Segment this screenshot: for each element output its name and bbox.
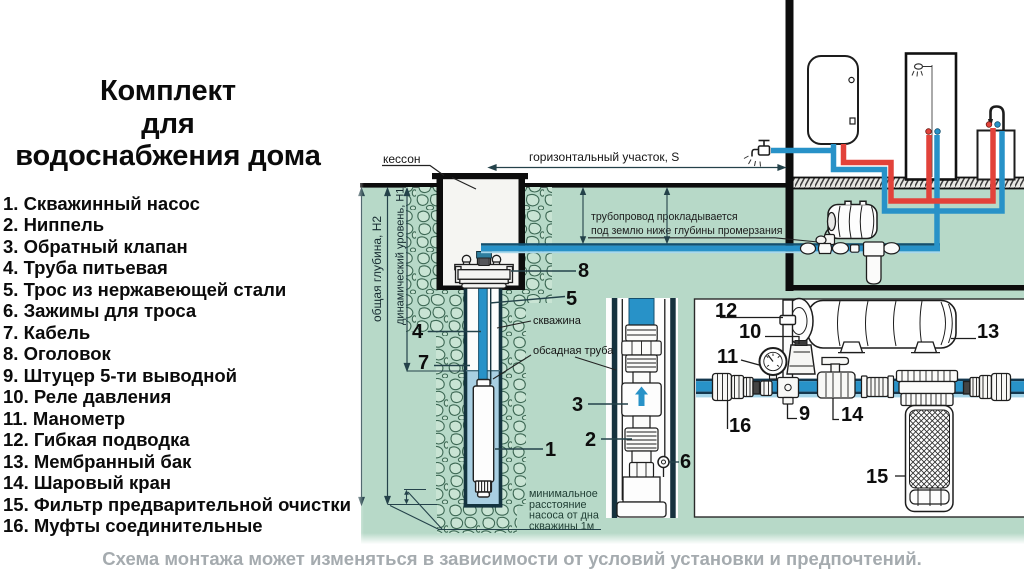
- svg-text:16: 16: [729, 415, 751, 437]
- svg-text:13: 13: [977, 321, 999, 343]
- svg-text:1: 1: [545, 439, 556, 461]
- svg-text:скважины 1м: скважины 1м: [529, 520, 594, 532]
- svg-text:15: 15: [866, 466, 888, 488]
- svg-text:под землю ниже глубины промерз: под землю ниже глубины промерзания: [591, 225, 783, 237]
- svg-text:8: 8: [578, 260, 589, 282]
- svg-text:5: 5: [566, 288, 577, 310]
- svg-text:2: 2: [585, 429, 596, 451]
- svg-text:12: 12: [715, 300, 737, 322]
- svg-text:трубопровод прокладывается: трубопровод прокладывается: [591, 211, 738, 223]
- svg-text:горизонтальный участок, S: горизонтальный участок, S: [529, 150, 679, 164]
- svg-text:10: 10: [739, 321, 761, 343]
- svg-text:кессон: кессон: [383, 152, 421, 166]
- svg-text:скважина: скважина: [533, 315, 582, 327]
- svg-text:6: 6: [680, 451, 691, 473]
- svg-text:обсадная труба: обсадная труба: [533, 345, 614, 357]
- svg-text:динамический уровень, Н1: динамический уровень, Н1: [395, 188, 407, 325]
- svg-text:14: 14: [841, 404, 864, 426]
- svg-text:общая глубина, Н2: общая глубина, Н2: [370, 216, 384, 322]
- svg-text:3: 3: [572, 394, 583, 416]
- svg-text:4: 4: [412, 321, 424, 343]
- svg-text:9: 9: [799, 403, 810, 425]
- svg-text:7: 7: [418, 352, 429, 374]
- svg-text:11: 11: [717, 346, 738, 368]
